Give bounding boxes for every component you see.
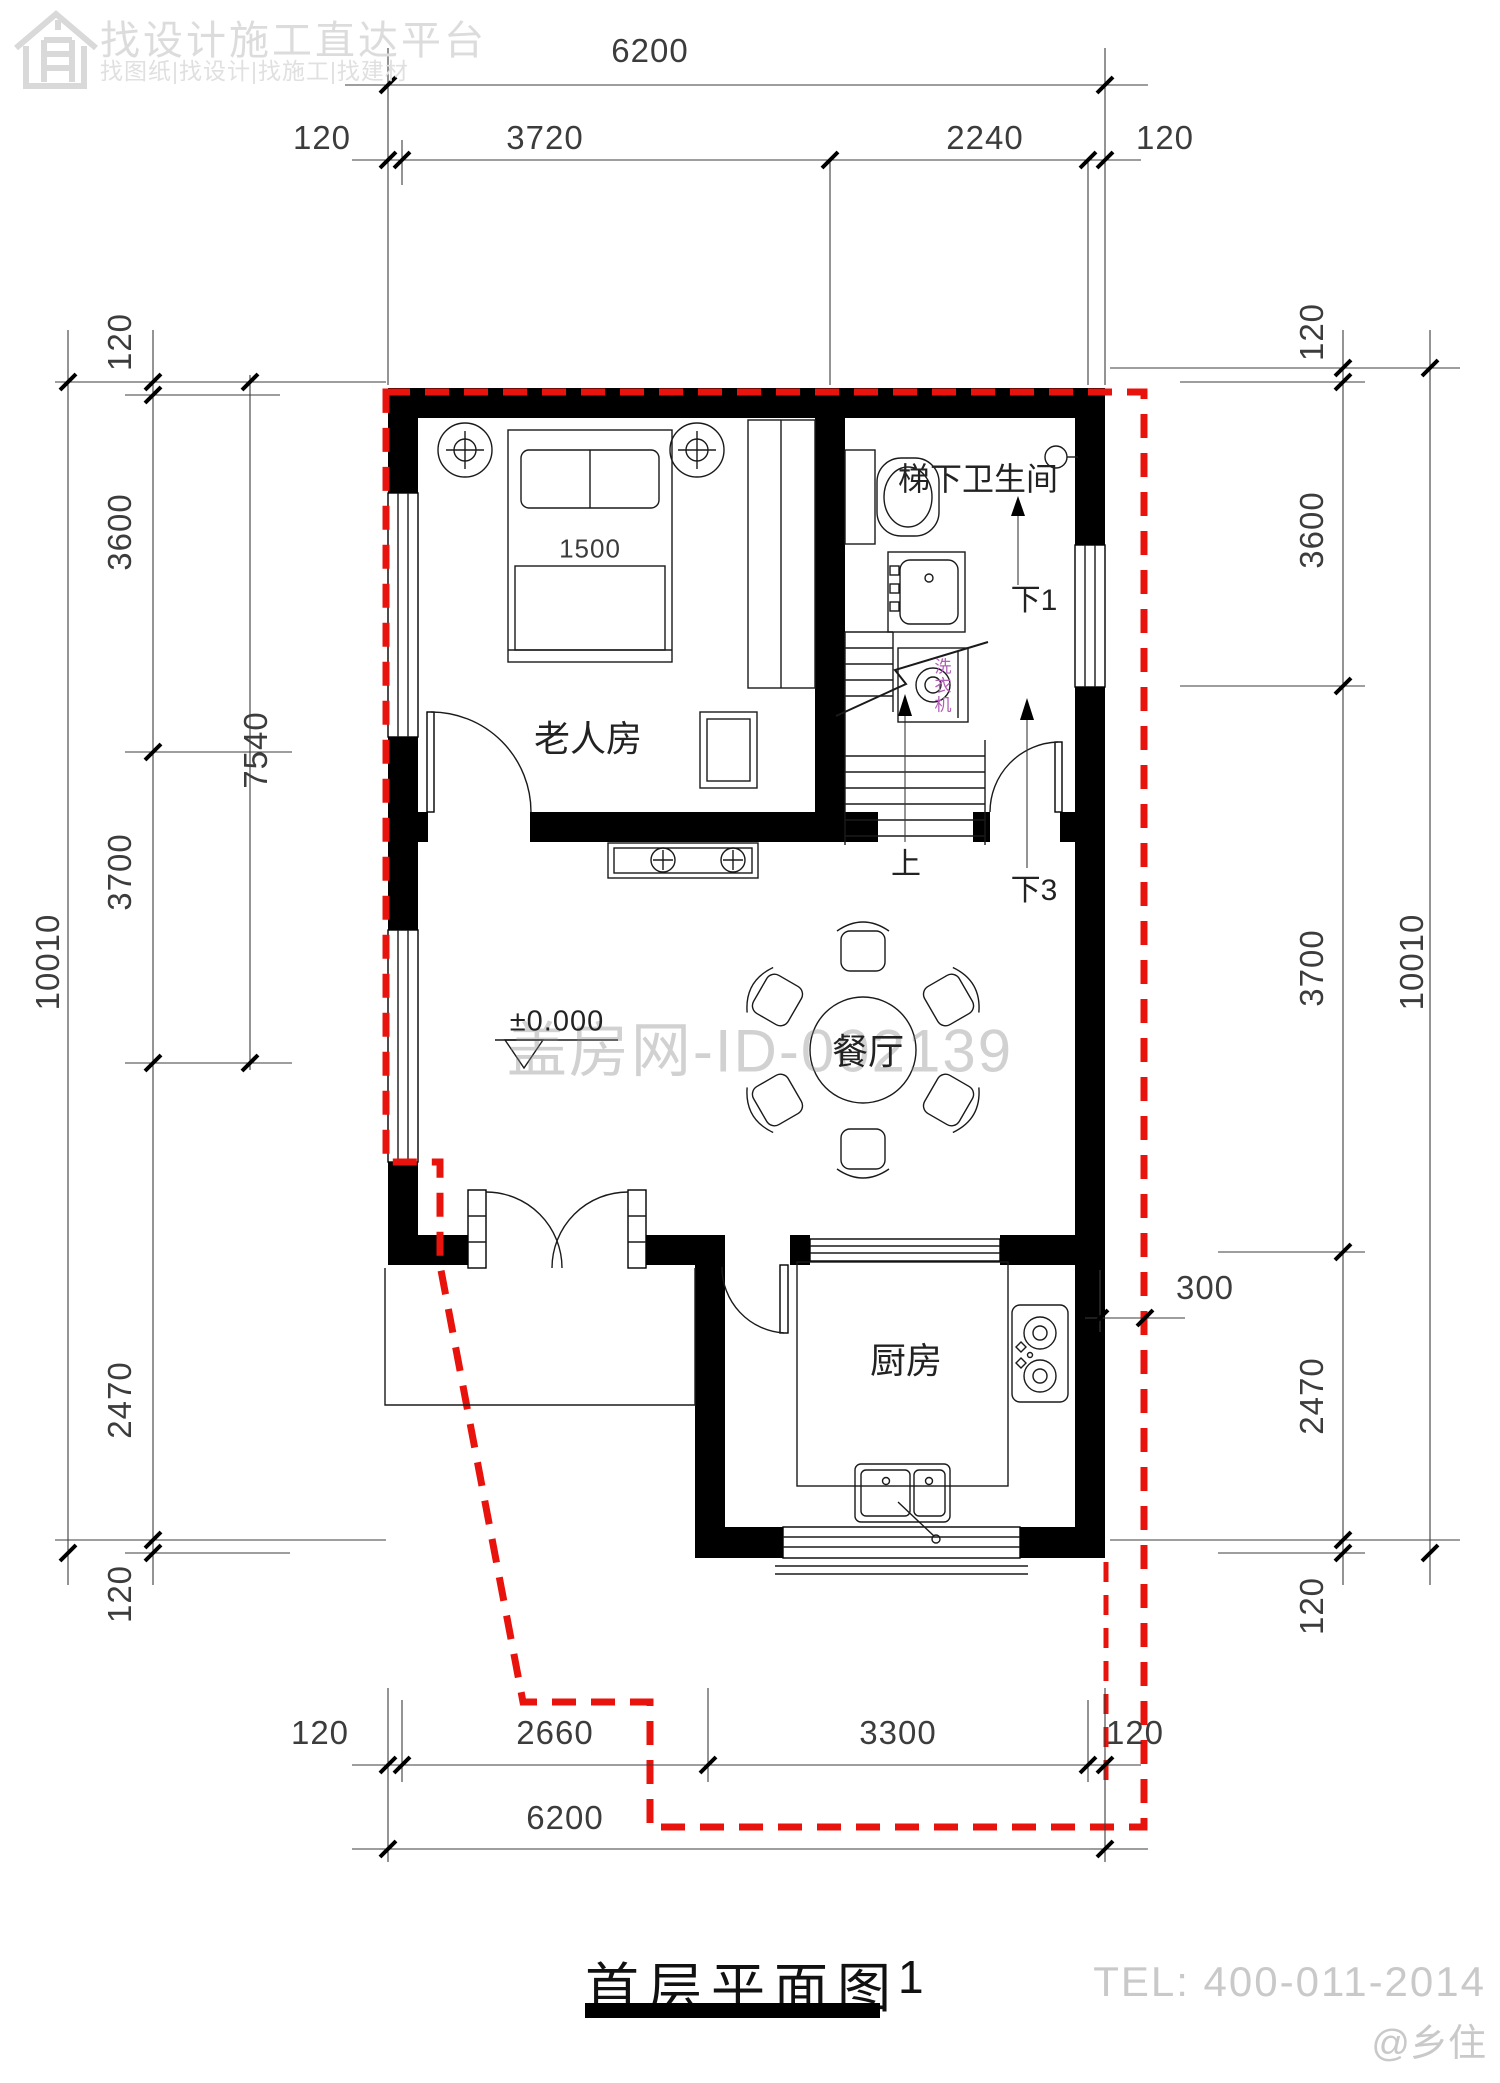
room-label-bedroom: 老人房 (534, 710, 642, 762)
kitchen-door (722, 1265, 788, 1333)
wardrobe (748, 420, 815, 688)
dim-left-120-top: 120 (101, 313, 139, 371)
dim-left-3600: 3600 (101, 493, 139, 570)
shoe-bench (608, 843, 758, 878)
logo-house-icon (16, 14, 96, 86)
dim-left-2470: 2470 (101, 1361, 139, 1438)
stair-label-down3: 下3 (1011, 865, 1058, 909)
stair-break-line (836, 642, 988, 716)
dim-left-120-bottom: 120 (101, 1565, 139, 1623)
dim-right-2470: 2470 (1293, 1357, 1331, 1434)
dim-top-3720: 3720 (506, 119, 583, 157)
wash-basin (888, 552, 965, 632)
ceiling-fan-icon (670, 423, 724, 477)
dim-right-10010: 10010 (1393, 914, 1431, 1011)
credit-handle: @乡住 (1371, 2012, 1486, 2067)
room-label-dining: 餐厅 (832, 1023, 904, 1075)
down1-arrow (1011, 496, 1025, 585)
dim-top-total: 6200 (611, 32, 688, 70)
level-label: ±0.000 (510, 1006, 605, 1039)
dim-top-2240: 2240 (946, 119, 1023, 157)
room-label-bathroom: 梯下卫生间 (898, 454, 1058, 500)
dim-bottom-2660: 2660 (516, 1714, 593, 1752)
dim-right-120-bottom: 120 (1293, 1577, 1331, 1635)
dim-bottom-120-left: 120 (291, 1714, 349, 1752)
stair-label-down1: 下1 (1011, 575, 1058, 619)
dim-right-3700: 3700 (1293, 929, 1331, 1006)
dim-bottom-120-right: 120 (1106, 1714, 1164, 1752)
gas-stove (1012, 1305, 1068, 1402)
dimension-lines (55, 48, 1460, 1862)
dim-left-3700: 3700 (101, 833, 139, 910)
kitchen-fixtures (722, 1262, 1068, 1543)
ceiling-fan-icon (438, 423, 492, 477)
desk (700, 712, 757, 788)
dim-left-10010: 10010 (29, 914, 67, 1011)
dim-bottom-3300: 3300 (859, 1714, 936, 1752)
entrance-double-door (468, 1190, 646, 1268)
washing-machine-label: 洗衣机 (929, 658, 954, 715)
dim-bed-1500: 1500 (559, 534, 621, 565)
dim-bottom-total: 6200 (526, 1799, 603, 1837)
dim-top-120-left: 120 (293, 119, 351, 157)
down3-arrow (1020, 698, 1034, 868)
dim-right-120-top: 120 (1293, 303, 1331, 361)
entry-porch (385, 1268, 695, 1405)
logo-subtitle: 找图纸|找设计|找施工|找建材 (100, 52, 409, 86)
drawing-title-underline (585, 2003, 880, 2018)
dim-top-120-right: 120 (1136, 119, 1194, 157)
dim-right-3600: 3600 (1293, 491, 1331, 568)
contact-phone: TEL: 400-011-2014 (1093, 1958, 1486, 2006)
dim-right-300: 300 (1176, 1269, 1234, 1307)
window-sill-lines (775, 1566, 1028, 1574)
walls (388, 388, 1105, 1558)
bedroom-door (427, 712, 531, 812)
drawing-title-number: 1 (898, 1950, 924, 2004)
floor-plan-page: 找设计施工直达平台 找图纸|找设计|找施工|找建材 6200 120 3720 … (0, 0, 1500, 2083)
room-label-kitchen: 厨房 (870, 1332, 942, 1384)
stair-label-up: 上 (891, 839, 921, 883)
hall-door (990, 742, 1062, 812)
dim-left-7540: 7540 (237, 711, 275, 788)
